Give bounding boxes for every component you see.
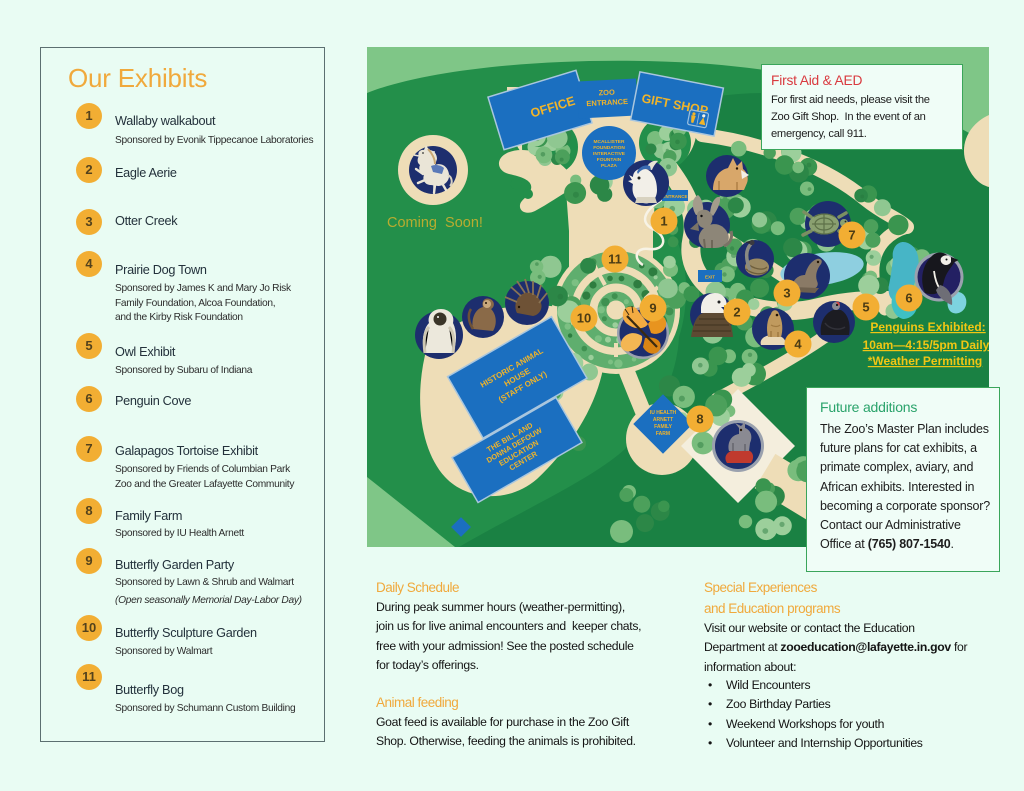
svg-text:ZOO: ZOO bbox=[598, 88, 615, 98]
svg-text:FOUNDATION: FOUNDATION bbox=[593, 145, 625, 151]
svg-text:Penguins Exhibited:: Penguins Exhibited: bbox=[870, 320, 985, 334]
svg-text:EXIT: EXIT bbox=[705, 275, 715, 280]
svg-text:1: 1 bbox=[660, 214, 667, 229]
svg-text:4: 4 bbox=[794, 337, 802, 352]
svg-text:FARM: FARM bbox=[656, 431, 670, 437]
svg-text:ENTRANCE: ENTRANCE bbox=[662, 194, 687, 199]
svg-text:5: 5 bbox=[862, 300, 869, 315]
svg-text:8: 8 bbox=[696, 412, 703, 427]
svg-text:2: 2 bbox=[733, 305, 740, 320]
svg-text:FAMILY: FAMILY bbox=[654, 424, 673, 430]
svg-text:FOUNTAIN: FOUNTAIN bbox=[597, 157, 622, 163]
svg-text:ARNETT: ARNETT bbox=[653, 417, 673, 423]
svg-text:3: 3 bbox=[783, 286, 790, 301]
svg-text:10: 10 bbox=[577, 311, 591, 326]
svg-text:MCALLISTER: MCALLISTER bbox=[594, 139, 625, 145]
svg-text:INTERACTIVE: INTERACTIVE bbox=[593, 151, 626, 157]
svg-text:9: 9 bbox=[649, 301, 656, 316]
svg-text:PLAZA: PLAZA bbox=[601, 163, 618, 169]
svg-text:*Weather Permitting: *Weather Permitting bbox=[868, 354, 982, 368]
svg-text:IU HEALTH: IU HEALTH bbox=[650, 410, 677, 416]
svg-text:11: 11 bbox=[608, 252, 622, 267]
svg-text:6: 6 bbox=[905, 291, 912, 306]
svg-text:Coming Soon!: Coming Soon! bbox=[387, 215, 483, 231]
svg-text:7: 7 bbox=[848, 228, 855, 243]
svg-text:10am—4:15/5pm Daily: 10am—4:15/5pm Daily bbox=[863, 338, 989, 352]
